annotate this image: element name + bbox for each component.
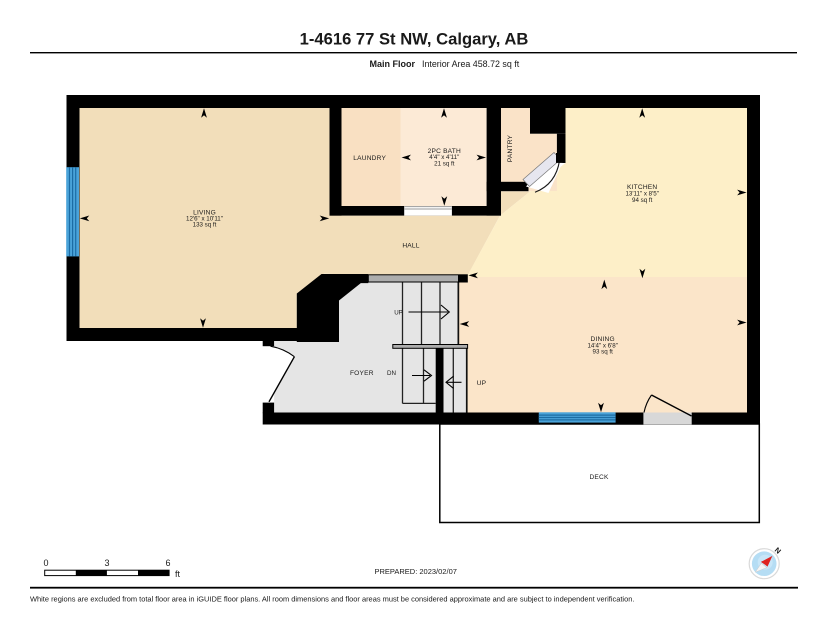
svg-text:PANTRY: PANTRY — [507, 134, 514, 162]
svg-text:Interior Area 458.72 sq ft: Interior Area 458.72 sq ft — [422, 59, 520, 69]
svg-text:0: 0 — [43, 558, 48, 568]
svg-text:3: 3 — [104, 558, 109, 568]
svg-text:White regions are excluded fro: White regions are excluded from total fl… — [30, 594, 634, 603]
svg-text:ft: ft — [175, 569, 181, 579]
svg-text:LAUNDRY: LAUNDRY — [353, 155, 386, 162]
svg-text:21 sq ft: 21 sq ft — [434, 161, 455, 168]
svg-text:Main Floor: Main Floor — [370, 59, 416, 69]
svg-text:1-4616 77 St NW, Calgary, AB: 1-4616 77 St NW, Calgary, AB — [300, 29, 529, 48]
svg-text:133 sq ft: 133 sq ft — [193, 222, 217, 229]
svg-text:93 sq ft: 93 sq ft — [593, 349, 614, 356]
svg-text:DN: DN — [387, 370, 396, 377]
svg-text:DECK: DECK — [589, 474, 609, 481]
svg-text:PREPARED: 2023/02/07: PREPARED: 2023/02/07 — [375, 567, 457, 576]
svg-text:FOYER: FOYER — [350, 370, 374, 377]
svg-text:HALL: HALL — [402, 243, 419, 250]
svg-text:6: 6 — [165, 558, 170, 568]
svg-text:94 sq ft: 94 sq ft — [632, 197, 653, 204]
svg-text:UP: UP — [394, 310, 403, 317]
svg-text:UP: UP — [477, 380, 487, 387]
